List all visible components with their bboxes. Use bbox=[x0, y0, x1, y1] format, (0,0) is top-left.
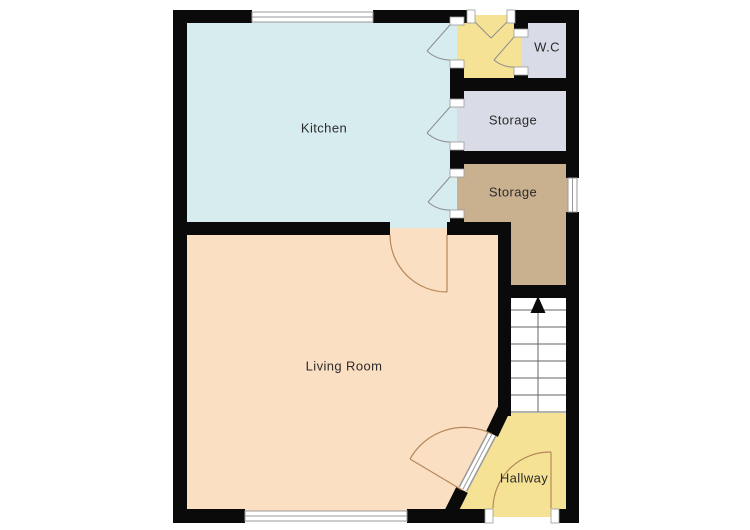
door-jamb bbox=[450, 60, 464, 68]
door-jamb bbox=[450, 17, 464, 25]
door-jamb bbox=[467, 10, 475, 23]
wall bbox=[559, 509, 579, 523]
door-jamb bbox=[450, 142, 464, 150]
wall bbox=[173, 222, 390, 235]
wall bbox=[498, 222, 511, 416]
door-jamb bbox=[450, 99, 464, 107]
door-jamb bbox=[450, 210, 464, 218]
wall bbox=[173, 10, 187, 523]
floorplan: Kitchen Living Room W.C Storage Storage … bbox=[0, 0, 750, 530]
wall bbox=[450, 78, 579, 91]
room-living-floor bbox=[180, 228, 508, 516]
room-kitchen-floor bbox=[180, 15, 464, 230]
room-storage-lower-floor-extension bbox=[505, 222, 571, 292]
wall bbox=[450, 151, 579, 164]
door-jamb bbox=[551, 509, 559, 523]
wall bbox=[566, 212, 579, 523]
wall bbox=[514, 23, 528, 29]
door-jamb bbox=[514, 67, 528, 75]
floorplan-drawing bbox=[0, 0, 750, 530]
door-jamb bbox=[514, 29, 528, 37]
door-jamb bbox=[450, 169, 464, 177]
door-jamb bbox=[485, 509, 493, 523]
room-entry-lobby-floor bbox=[457, 15, 521, 85]
wall bbox=[173, 509, 245, 523]
room-storage-upper-floor bbox=[457, 85, 571, 158]
door-jamb bbox=[507, 10, 515, 23]
room-wc-floor bbox=[521, 15, 571, 85]
